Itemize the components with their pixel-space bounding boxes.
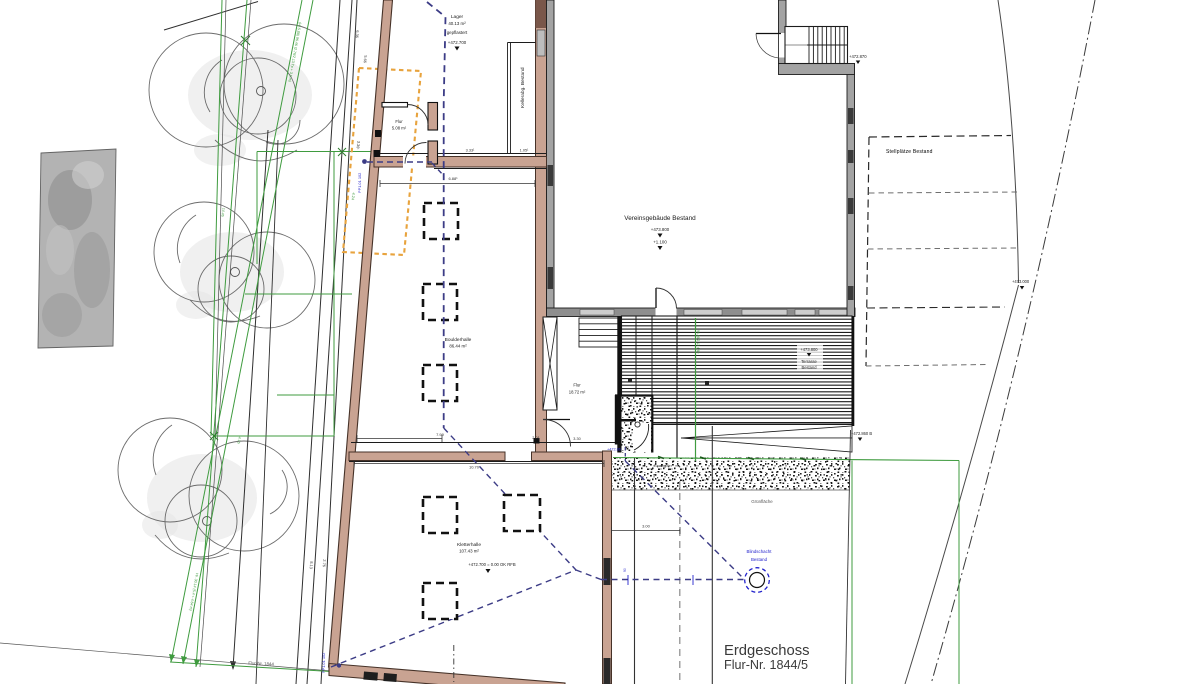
svg-text:+472.700 = 0.00 OK RFB: +472.700 = 0.00 OK RFB: [468, 562, 515, 567]
svg-text:Flur: Flur: [573, 383, 581, 388]
svg-text:Erdgeschoss: Erdgeschoss: [724, 643, 810, 659]
svg-text:+472.860 B: +472.860 B: [851, 431, 872, 436]
svg-text:Blindschacht: Blindschacht: [747, 549, 773, 554]
svg-text:Grünfläche: Grünfläche: [751, 499, 773, 504]
svg-text:Rasengitter: Rasengitter: [654, 464, 673, 468]
svg-text:+472.700: +472.700: [448, 40, 467, 45]
svg-text:Flur-Nr. 1844/5: Flur-Nr. 1844/5: [724, 658, 808, 672]
svg-text:6.36: 6.36: [355, 30, 360, 38]
svg-text:PP1.01 102: PP1.01 102: [357, 173, 362, 193]
svg-text:+472.870: +472.870: [849, 54, 867, 59]
svg-text:Boulderhalle: Boulderhalle: [445, 337, 472, 343]
svg-text:3.00: 3.00: [642, 524, 651, 529]
svg-text:107.43 m²: 107.43 m²: [459, 549, 479, 554]
svg-text:1.05¹: 1.05¹: [520, 149, 529, 153]
svg-text:Kellerabg. Bestand: Kellerabg. Bestand: [520, 67, 526, 108]
svg-text:96.46 2.13 4.60: 96.46 2.13 4.60: [696, 330, 700, 354]
svg-text:Bestand: Bestand: [801, 365, 817, 370]
svg-text:10.70: 10.70: [469, 465, 480, 470]
svg-text:PP1.01 102: PP1.01 102: [321, 653, 326, 673]
svg-text:90: 90: [623, 568, 627, 572]
svg-text:86.44 m²: 86.44 m²: [449, 344, 467, 349]
svg-text:40.13 m²: 40.13 m²: [448, 21, 466, 26]
svg-text:6.88¹: 6.88¹: [448, 176, 458, 181]
svg-text:+473.800: +473.800: [800, 347, 818, 352]
svg-text:7.99: 7.99: [436, 432, 445, 437]
svg-text:2.76: 2.76: [322, 559, 327, 567]
svg-text:3.36¹: 3.36¹: [355, 141, 360, 151]
svg-text:+472.86: +472.86: [607, 448, 621, 452]
svg-text:Bestand: Bestand: [751, 557, 768, 562]
svg-text:gepflastert: gepflastert: [447, 30, 468, 35]
svg-text:4.15: 4.15: [236, 436, 241, 444]
svg-text:2.01: 2.01: [532, 436, 539, 440]
svg-text:Terrasse: Terrasse: [801, 359, 817, 364]
svg-text:+473.800: +473.800: [651, 227, 670, 232]
svg-text:3.33¹: 3.33¹: [466, 149, 475, 153]
svg-text:+1.100: +1.100: [653, 240, 667, 245]
svg-text:Flur: Flur: [395, 119, 403, 124]
svg-text:Stellplätze Bestand: Stellplätze Bestand: [886, 149, 933, 155]
svg-text:3.30: 3.30: [573, 437, 580, 441]
svg-text:5.66: 5.66: [363, 55, 368, 63]
svg-text:5.08 m²: 5.08 m²: [392, 126, 407, 131]
svg-text:Vereinsgebäude Bestand: Vereinsgebäude Bestand: [624, 215, 696, 222]
svg-text:Lager: Lager: [451, 14, 464, 20]
svg-text:18.72 m²: 18.72 m²: [569, 390, 586, 395]
svg-text:+473.000: +473.000: [1012, 279, 1030, 284]
svg-text:8.13: 8.13: [309, 561, 314, 569]
svg-text:Flur-Nr. 1844: Flur-Nr. 1844: [248, 660, 274, 666]
svg-text:Kletterhalle: Kletterhalle: [457, 542, 481, 548]
svg-text:4.24: 4.24: [351, 192, 356, 200]
